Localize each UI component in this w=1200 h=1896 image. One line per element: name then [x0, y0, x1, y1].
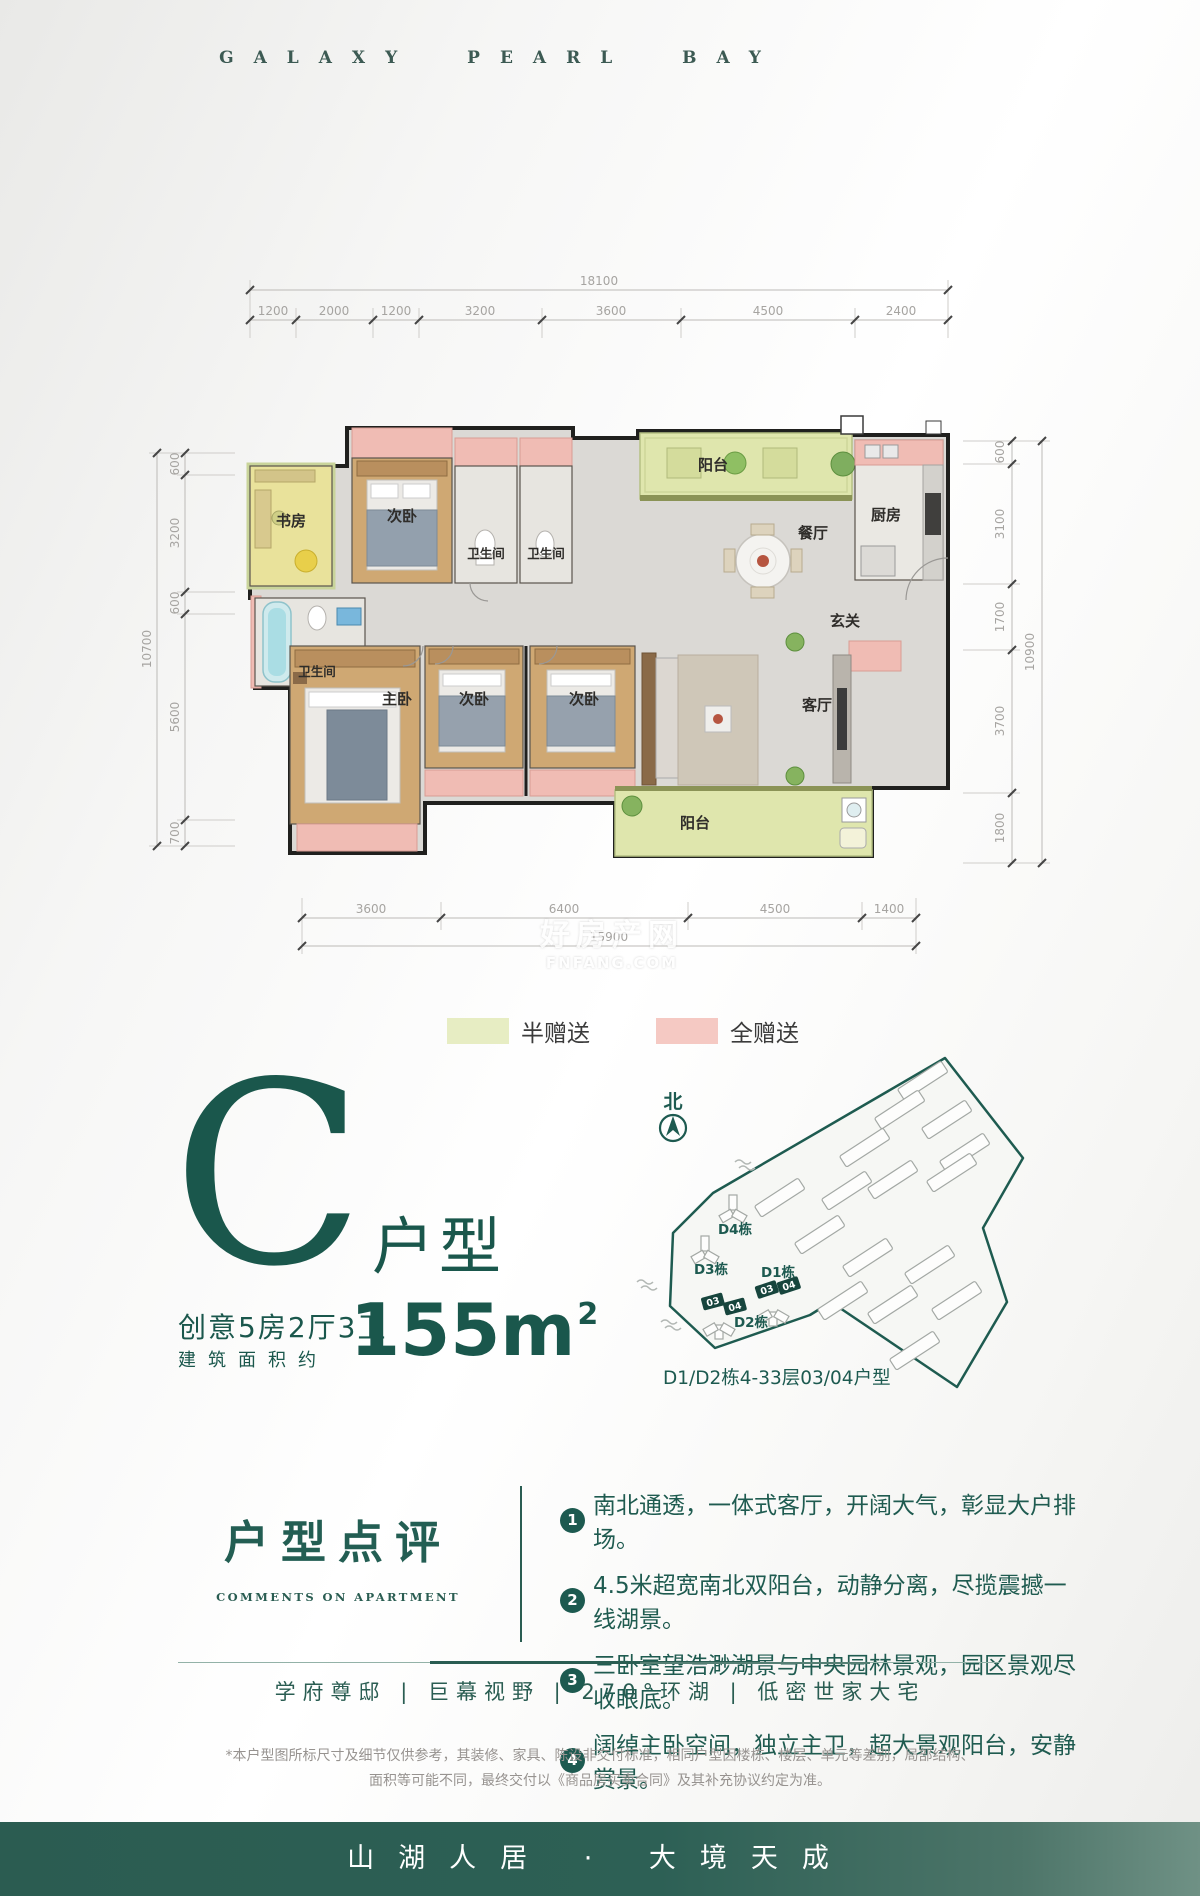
- comments-divider: [520, 1486, 522, 1642]
- unit-area-value: 155m2: [350, 1294, 596, 1366]
- label-balcony-bottom: 阳台: [680, 814, 710, 832]
- label-balcony-top: 阳台: [698, 456, 728, 474]
- label-living: 客厅: [801, 696, 832, 714]
- brand-title: GALAXY PEARL BAY: [0, 48, 1000, 68]
- entry-gift-zone: [849, 641, 901, 671]
- svg-text:3200: 3200: [465, 304, 496, 318]
- svg-text:1700: 1700: [993, 602, 1007, 633]
- dims-top: 18100 1200 2000 1200 3200 3600 4500 2400: [246, 274, 952, 338]
- label-study: 书房: [276, 512, 306, 530]
- flue-box-small: [926, 421, 941, 434]
- svg-text:18100: 18100: [580, 274, 618, 288]
- svg-text:1200: 1200: [381, 304, 412, 318]
- number-1-icon: 1: [560, 1508, 585, 1533]
- room-bath-b: [520, 438, 572, 583]
- room-bedroom-mid2: [530, 646, 635, 796]
- label-bedroom-mid2: 次卧: [569, 690, 599, 708]
- svg-text:600: 600: [168, 592, 182, 615]
- full-gift-label: 全赠送: [730, 1014, 799, 1048]
- watermark-url: FNFANG.COM: [502, 954, 722, 972]
- comments-subtitle: COMMENTS ON APARTMENT: [205, 1590, 471, 1604]
- label-bath-master: 卫生间: [298, 664, 336, 679]
- svg-text:1200: 1200: [258, 304, 289, 318]
- label-kitchen: 厨房: [871, 506, 901, 524]
- svg-text:700: 700: [168, 822, 182, 845]
- svg-text:600: 600: [993, 441, 1007, 464]
- site-plan: 北 03 04: [635, 1050, 1065, 1395]
- svg-text:4500: 4500: [753, 304, 784, 318]
- full-gift-swatch: [656, 1018, 718, 1044]
- section-rule-accent2: [640, 1662, 870, 1664]
- svg-text:10700: 10700: [140, 630, 154, 668]
- svg-text:2000: 2000: [319, 304, 350, 318]
- room-bedroom-mid1: [425, 646, 523, 796]
- comment-item: 1 南北通透，一体式客厅，开阔大气，彰显大户排场。: [560, 1486, 1084, 1554]
- site-plan-caption: D1/D2栋4-33层03/04户型: [663, 1368, 891, 1389]
- svg-text:3100: 3100: [993, 509, 1007, 540]
- block-label-d4: D4栋: [718, 1221, 753, 1238]
- comment-item: 2 4.5米超宽南北双阳台，动静分离，尽揽震撼一线湖景。: [560, 1566, 1084, 1634]
- room-balcony-top: [640, 433, 855, 501]
- disclaimer: *本户型图所标尺寸及细节仅供参考，其装修、家具、陈设非交付标准，相同户型因楼栋、…: [100, 1744, 1100, 1794]
- label-dining: 餐厅: [798, 524, 828, 542]
- block-label-d1: D1栋: [761, 1264, 796, 1281]
- room-bath-a: [455, 438, 517, 583]
- svg-text:4500: 4500: [760, 902, 791, 916]
- svg-text:3600: 3600: [596, 304, 627, 318]
- north-label: 北: [663, 1091, 682, 1113]
- dims-right: 600 3100 1700 3700 1800 10900: [963, 437, 1050, 867]
- area-superscript: 2: [577, 1297, 598, 1332]
- half-gift-label: 半赠送: [521, 1014, 590, 1048]
- comment-text: 4.5米超宽南北双阳台，动静分离，尽揽震撼一线湖景。: [593, 1566, 1084, 1634]
- selling-points-tagline: 学府尊邸 | 巨幕视野 | 270°环湖 | 低密世家大宅: [10, 1676, 1190, 1706]
- number-2-icon: 2: [560, 1588, 585, 1613]
- label-bedroom-top: 次卧: [387, 507, 417, 525]
- unit-area-label: 建筑面积约: [178, 1346, 328, 1372]
- svg-text:600: 600: [168, 453, 182, 476]
- label-foyer: 玄关: [830, 612, 860, 630]
- room-bedroom-top: [352, 428, 452, 583]
- svg-text:5600: 5600: [168, 702, 182, 733]
- block-label-d2: D2栋: [734, 1314, 769, 1331]
- half-gift-swatch: [447, 1018, 509, 1044]
- svg-text:1800: 1800: [993, 813, 1007, 844]
- flue-box: [841, 416, 863, 434]
- watermark-text: 好房产网: [502, 910, 722, 954]
- svg-text:3700: 3700: [993, 706, 1007, 737]
- compass-icon: [660, 1115, 686, 1141]
- floorplan-drawing: 书房 次卧 卫生间 卫生间 阳台 餐厅 厨房 玄关 卫生间 主卧 次卧 次卧 客…: [105, 258, 1055, 970]
- label-bath-b: 卫生间: [527, 546, 565, 561]
- comment-text: 南北通透，一体式客厅，开阔大气，彰显大户排场。: [593, 1486, 1084, 1554]
- block-label-d3: D3栋: [694, 1261, 729, 1278]
- unit-letter: C: [172, 1050, 365, 1302]
- watermark: 好房产网 FNFANG.COM: [502, 910, 722, 972]
- area-number: 155m: [350, 1288, 575, 1372]
- svg-text:10900: 10900: [1023, 633, 1037, 671]
- svg-text:3600: 3600: [356, 902, 387, 916]
- gift-legend: 半赠送 全赠送: [447, 1014, 799, 1048]
- disclaimer-line1: *本户型图所标尺寸及细节仅供参考，其装修、家具、陈设非交付标准，相同户型因楼栋、…: [100, 1744, 1100, 1769]
- comments-title: 户型点评: [205, 1520, 471, 1565]
- label-bath-a: 卫生间: [467, 546, 505, 561]
- svg-text:2400: 2400: [886, 304, 917, 318]
- label-master: 主卧: [382, 690, 412, 708]
- disclaimer-line2: 面积等可能不同，最终交付以《商品房买卖合同》及其补充协议约定为准。: [100, 1769, 1100, 1794]
- svg-text:1400: 1400: [874, 902, 905, 916]
- svg-text:3200: 3200: [168, 518, 182, 549]
- unit-type-suffix: 户型: [372, 1216, 506, 1278]
- dims-left: 600 3200 600 5600 700 10700: [140, 449, 235, 850]
- room-balcony-bottom: [615, 786, 872, 856]
- label-bedroom-mid1: 次卧: [459, 690, 489, 708]
- footer-slogan: 山湖人居 · 大境天成: [0, 1822, 1200, 1896]
- footer-bar: 山湖人居 · 大境天成: [0, 1822, 1200, 1896]
